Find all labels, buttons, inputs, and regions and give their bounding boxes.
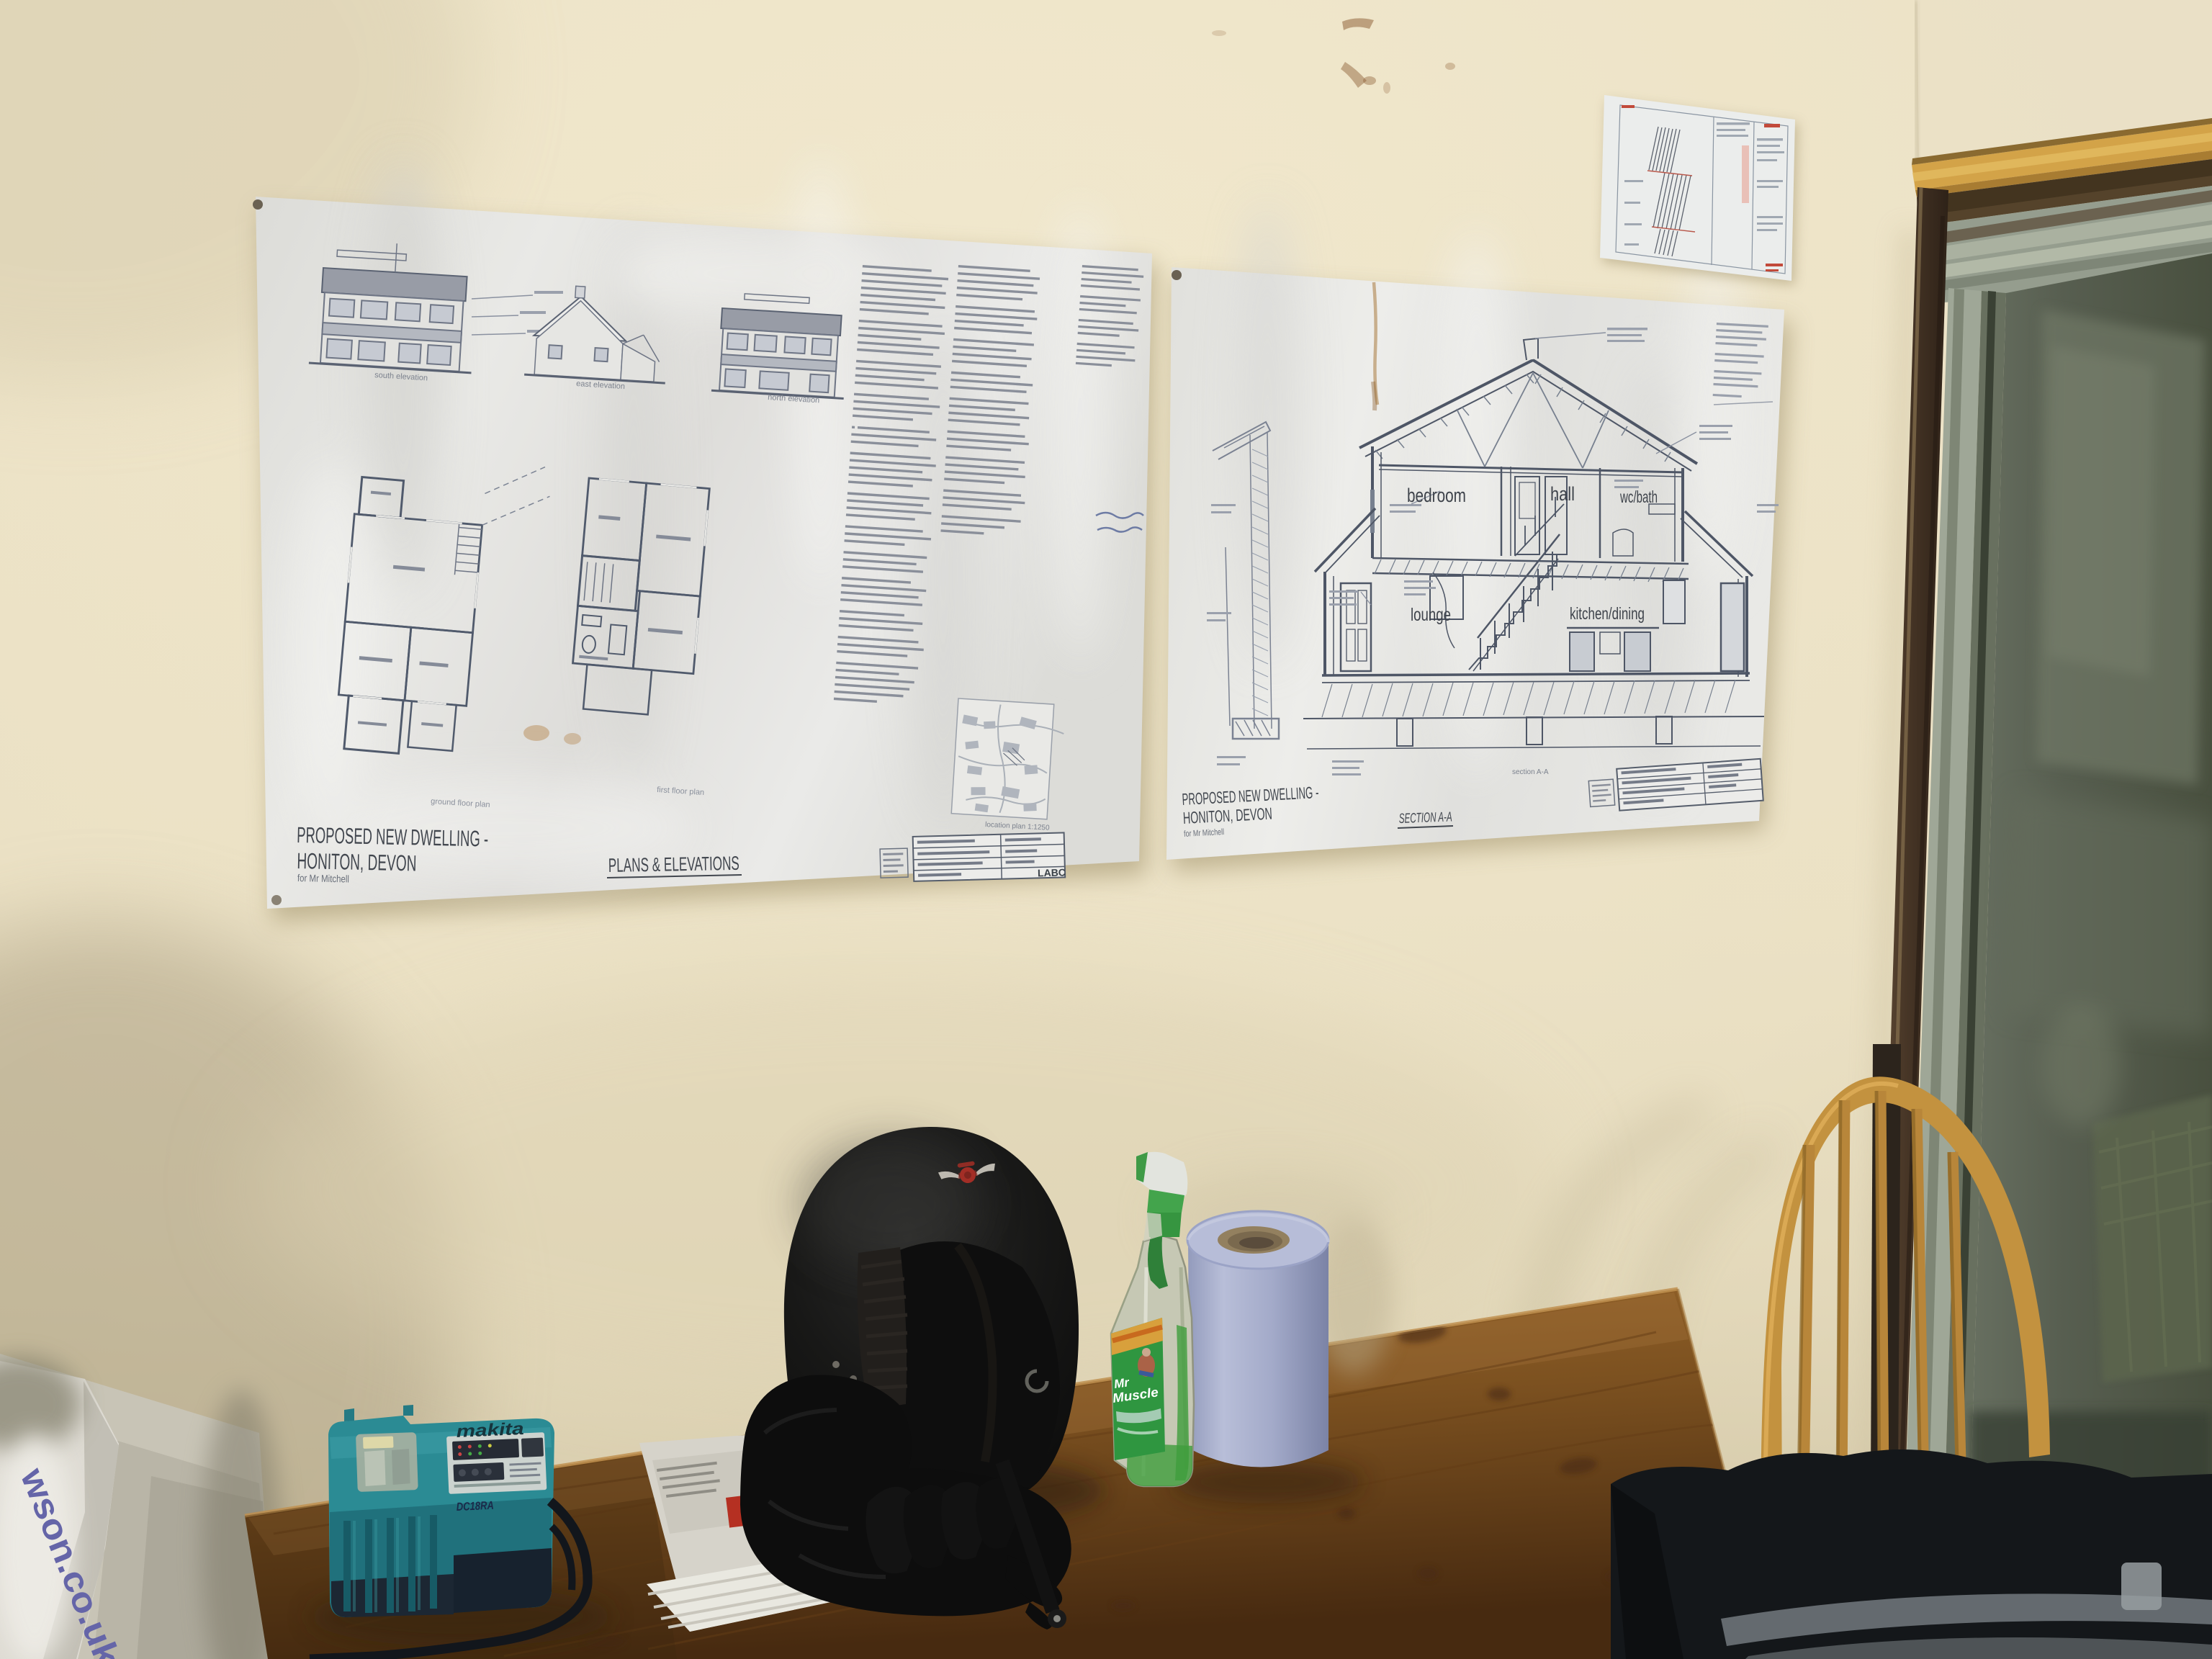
svg-text:hall: hall [1550, 483, 1575, 505]
svg-text:PLANS & ELEVATIONS: PLANS & ELEVATIONS [608, 853, 739, 876]
svg-text:bedroom: bedroom [1407, 485, 1466, 506]
svg-text:PROPOSED NEW DWELLING -: PROPOSED NEW DWELLING - [297, 822, 489, 852]
svg-text:section A-A: section A-A [1512, 768, 1549, 776]
svg-text:wc/bath: wc/bath [1619, 487, 1658, 506]
svg-text:for Mr Mitchell: for Mr Mitchell [297, 872, 349, 885]
svg-text:for Mr Mitchell: for Mr Mitchell [1184, 827, 1225, 839]
svg-text:LABC: LABC [1038, 866, 1066, 878]
svg-text:lounge: lounge [1411, 605, 1451, 625]
svg-text:makita: makita [456, 1419, 524, 1442]
svg-text:DC18RA: DC18RA [456, 1500, 494, 1514]
svg-text:kitchen/dining: kitchen/dining [1570, 604, 1645, 623]
svg-text:SECTION A-A: SECTION A-A [1398, 809, 1452, 827]
